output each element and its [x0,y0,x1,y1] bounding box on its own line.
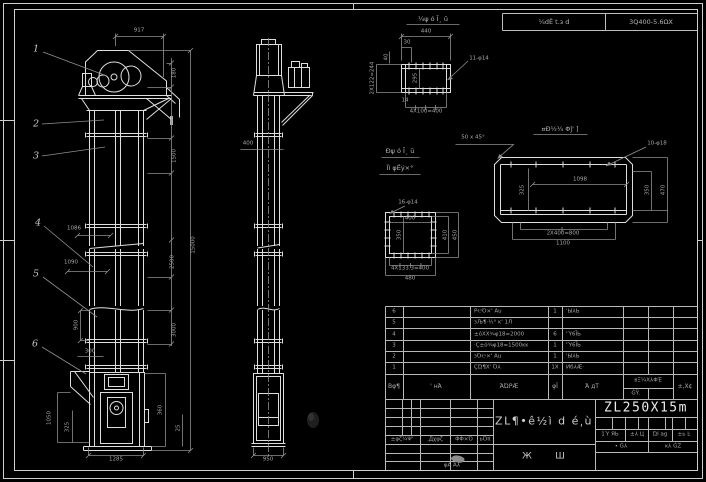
bom-header-name: ΆΏΡÆ [500,384,519,390]
balloon-1: 1 [33,44,39,55]
header-bar-right-label: 3Q400-5.6ΩΧ [629,19,673,26]
tb-label-4: ±ь Ŀ [678,432,691,438]
bom-row-name: Ρ℮Ό×' Au [474,309,502,315]
detail-a-title: ¼ψ ó Ī¸ ŭ [418,16,448,23]
dim-1500: 1500 [172,149,178,163]
dim-917: 917 [134,28,145,34]
dim-a-14: 14 [402,98,409,104]
dim-360: 360 [158,405,164,416]
dim-c-holes: 10-φ18 [647,141,667,147]
bom-row-qty: 6 [553,332,557,338]
dim-15000: 15000 [191,236,197,254]
dim-b-350: 350 [397,230,403,241]
detail-a-linework [402,63,451,95]
drawing-linework [0,0,706,482]
drawing-subtitle-right: Ш [555,453,567,462]
bom-row-qty: 1 [553,354,557,360]
dim-side-950: 950 [263,457,274,463]
bom-row-material: Ͷб⅄Æ· [566,365,584,371]
smudge-artifact [307,412,319,428]
detail-b-title-2: Ïì φЁý×° [387,165,414,172]
tb-label-2: ±⅄ Ц [630,432,644,438]
dim-a-244: 2X122=244 [370,62,376,95]
bom-row-name: зΌ℮×' Au [474,354,501,360]
rev-header-mark: ±φζ¼Ψ' [391,437,413,443]
dim-c-chamfer: 50 x 45° [461,135,485,141]
dim-180: 180 [172,68,178,79]
dim-b-450: 450 [453,230,459,241]
dim-c-325: 325 [520,185,526,196]
cad-drawing-canvas: ¼dЁ t.з d 3Q400-5.6ΩΧ 1 2 3 4 5 6 917 18… [0,0,706,482]
detail-b-title-1: Ðψ ó Ī¸ ŭ [386,148,415,155]
dim-c-470: 470 [661,185,667,196]
dim-b-400: 400 [405,216,416,222]
drawing-subtitle-left: Ж [522,453,534,462]
bom-header-no: Βφ¶ [388,384,400,390]
dim-1050: 1050 [47,411,53,425]
dim-2500: 2500 [170,255,176,269]
bom-row-material: 'Ύ6ĪЬ [566,332,581,338]
dim-side-400: 400 [243,141,254,147]
dim-c-800: 2X400=800 [547,231,580,237]
bom-row-no: 6 [392,309,396,315]
side-view-linework [252,40,314,447]
balloon-2: 2 [33,119,39,130]
dim-a-295: 295 [413,73,419,84]
rev-header-docno: ͵Дχφζ [427,437,443,443]
bom-row-material: 'Ύ6ĪЬ [566,343,581,349]
dim-a-400: 4X100=400 [410,109,443,115]
bom-header-material: Ά дΤ [585,384,599,390]
bom-row-no: 3 [392,343,396,349]
drawing-frame [0,4,703,479]
bom-row-material: 'Ы⅄Ь [566,354,580,360]
bom-header-weight-sub: ĠΫ. [631,391,640,397]
dimension-lines [42,25,668,459]
model-number: ZL250X15m [604,402,688,415]
bom-row-no: 1 [392,365,396,371]
dim-300: 300 [85,349,96,355]
front-view-linework [71,51,180,451]
dim-a-30: 30 [404,40,411,46]
header-bar-left-label: ¼dЁ t.з d [539,19,570,26]
bom-row-name: зЉ¶·½° ĸ' 1Л [474,320,512,326]
balloon-5: 5 [33,269,39,280]
bom-row-no: 4 [392,332,396,338]
dim-c-350: 350 [645,185,651,196]
dim-c-1100: 1100 [556,241,570,247]
dim-a-440: 440 [421,29,432,35]
rev-header-sign: ΦΦ×Ό [455,437,473,443]
dim-325: 325 [65,422,71,433]
dim-1285: 1285 [109,457,123,463]
bom-row-no: 2 [392,354,396,360]
bom-header-qty: φΪ [552,384,558,390]
rev-footer: φĀ Ά⅄ [444,463,460,469]
bom-row-qty: 1 [553,343,557,349]
rev-header-date: ьΌπ [479,437,490,443]
dim-b-holes: 16-φ14 [398,200,418,206]
balloon-4: 4 [35,218,41,229]
bom-row-material: 'Ы⅄Ь [566,309,580,315]
detail-c-linework [495,158,633,223]
tb-label-3: ΏΙ ag [653,432,668,438]
bom-row-name: ÇΏ¶X' Ό⅄ [474,365,501,371]
dim-a-40: 40 [384,54,390,61]
bom-row-qty: 1X [551,365,558,371]
dim-1090: 1090 [64,260,78,266]
dim-b-4133: 4X133.3=400 [391,266,429,272]
drawing-title: ZL¶•ê½ì d é͵ù [495,416,593,427]
bom-row-name: ±όΧΧ¾φ18=2000 [474,332,524,338]
dim-b-480: 480 [405,276,416,282]
bom-row-name: ·Ç±ό¾φ18=1500ĸĸ [474,343,529,349]
dim-1086: 1086 [67,226,81,232]
balloon-3: 3 [33,151,39,162]
sheet-count: • Ġ⅄ [615,444,628,450]
dim-c-1098: 1098 [573,177,587,183]
dim-3000: 3000 [172,323,178,337]
dim-900: 900 [74,320,80,331]
sheet-number: ĸ⅄ ĠΖ [665,444,681,450]
bom-row-no: 5 [392,320,396,326]
dim-b-410: 410 [443,230,449,241]
bom-row-qty: 1 [553,309,557,315]
bom-header-code: ' нΆ [430,384,442,390]
bom-header-note: ±,Χ¢ [678,384,693,390]
detail-c-title: ¤Đ½¼ Φĵ' ] [541,126,578,133]
tb-label-1: 1Ύ ЯЬ [601,432,618,438]
dim-25: 25 [176,425,182,432]
dim-a-holes: 11-φ14 [469,56,489,62]
balloon-6: 6 [32,339,38,350]
bom-header-weight: вΞ¼Χ⅄ΦΈ [634,378,662,384]
